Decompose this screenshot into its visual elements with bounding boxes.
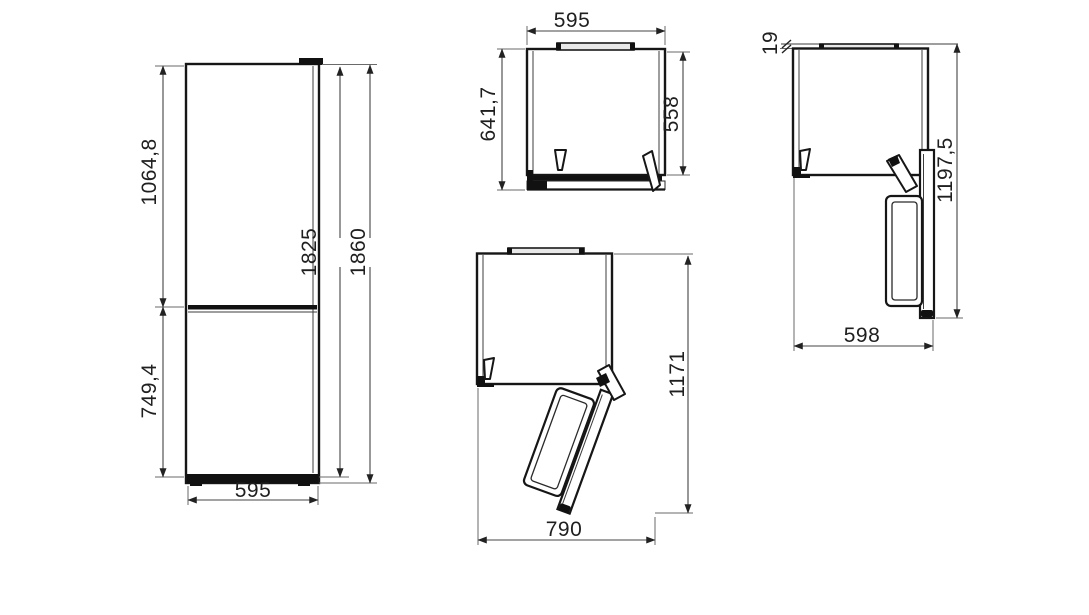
openwide-wall-spacer [508,248,584,254]
front-top-hinge-cover [299,58,323,65]
dim-label-door-height: 1825 [298,228,321,277]
front-right-foot [298,483,310,486]
dim-label-front-width: 595 [235,479,272,502]
front-door-divider [188,305,317,310]
dim-label-width-door-open-wide: 790 [546,518,583,541]
dim-label-depth-body: 558 [660,96,683,133]
front-left-foot [190,483,202,486]
dim-label-depth-door-open-90: 1197,5 [934,137,957,203]
dim-label-depth-door-open-wide: 1171 [666,350,689,397]
open90-cabinet-outline [793,49,928,176]
dim-label-width-door-open-90: 598 [844,324,881,347]
top-view-door-closed: 595 641,7 558 [477,9,690,191]
front-view: 1064,8 749,4 1825 1860 595 [138,58,377,505]
dim-label-lower-height: 749,4 [138,363,161,418]
open90-door-end-cap [921,310,933,317]
dim-label-total-height: 1860 [347,228,370,277]
dim-label-upper-height: 1064,8 [138,138,161,205]
top-closed-door-front [527,181,665,190]
refrigerator-dimension-drawing: 1064,8 749,4 1825 1860 595 595 [0,0,1089,615]
dim-label-depth-with-door: 641,7 [477,86,500,141]
openwide-door-group [518,376,613,514]
dim-label-wall-clearance: 19 [759,31,782,55]
top-closed-door-bar [530,176,662,182]
top-view-door-open-90: 19 1197,5 598 [759,31,963,351]
dimension-drawing-canvas: 1064,8 749,4 1825 1860 595 595 [0,0,1089,615]
top-view-door-open-wide: 1171 790 [477,248,693,545]
top-closed-wall-spacer [557,43,634,50]
dim-label-top-width: 595 [554,9,591,32]
openwide-cabinet-outline [477,254,612,385]
